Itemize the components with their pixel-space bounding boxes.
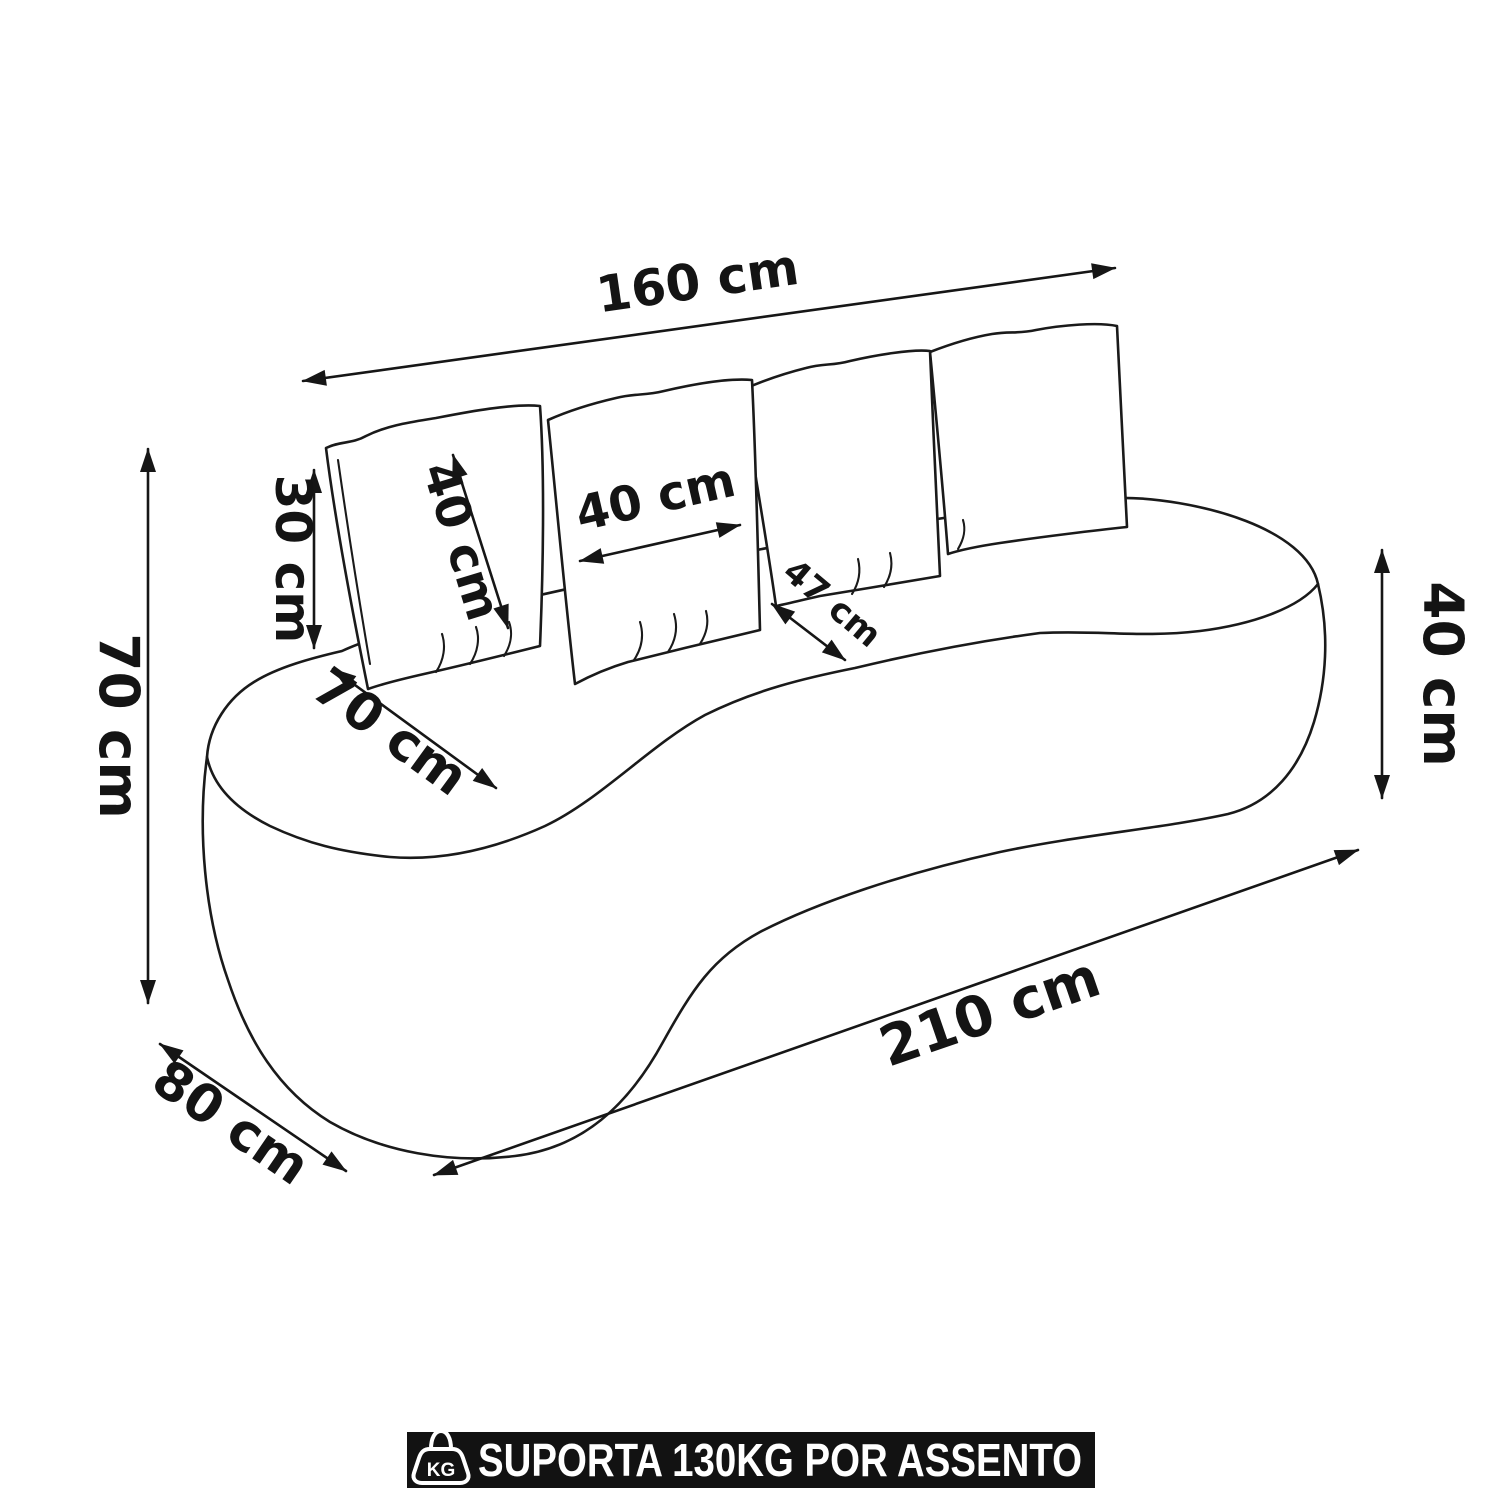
dim-overall-length-label: 210 cm (872, 945, 1109, 1081)
dim-seat-height: 40 cm (1382, 550, 1475, 798)
dim-pillow-drop-label: 30 cm (264, 475, 322, 644)
capacity-banner-text: SUPORTA 130KG POR ASSENTO (478, 1434, 1082, 1486)
dim-pillow-drop: 30 cm (264, 470, 322, 648)
sofa-dimension-diagram: 160 cm 70 cm 30 cm 40 cm 40 cm 47 cm (0, 0, 1500, 1500)
capacity-banner: KG SUPORTA 130KG POR ASSENTO (407, 1431, 1095, 1488)
dim-seat-height-label: 40 cm (1411, 581, 1475, 767)
dim-overall-height-label: 70 cm (87, 633, 151, 819)
kg-weight-icon-label: KG (427, 1460, 456, 1481)
back-pillow-3-body (742, 351, 940, 606)
back-pillow-3 (742, 351, 940, 606)
dim-back-width-label: 160 cm (593, 238, 803, 324)
back-pillow-4 (930, 324, 1127, 554)
dim-overall-height: 70 cm (87, 449, 151, 1003)
back-pillow-4-body (930, 324, 1127, 554)
diagram-canvas: 160 cm 70 cm 30 cm 40 cm 40 cm 47 cm (0, 0, 1500, 1500)
